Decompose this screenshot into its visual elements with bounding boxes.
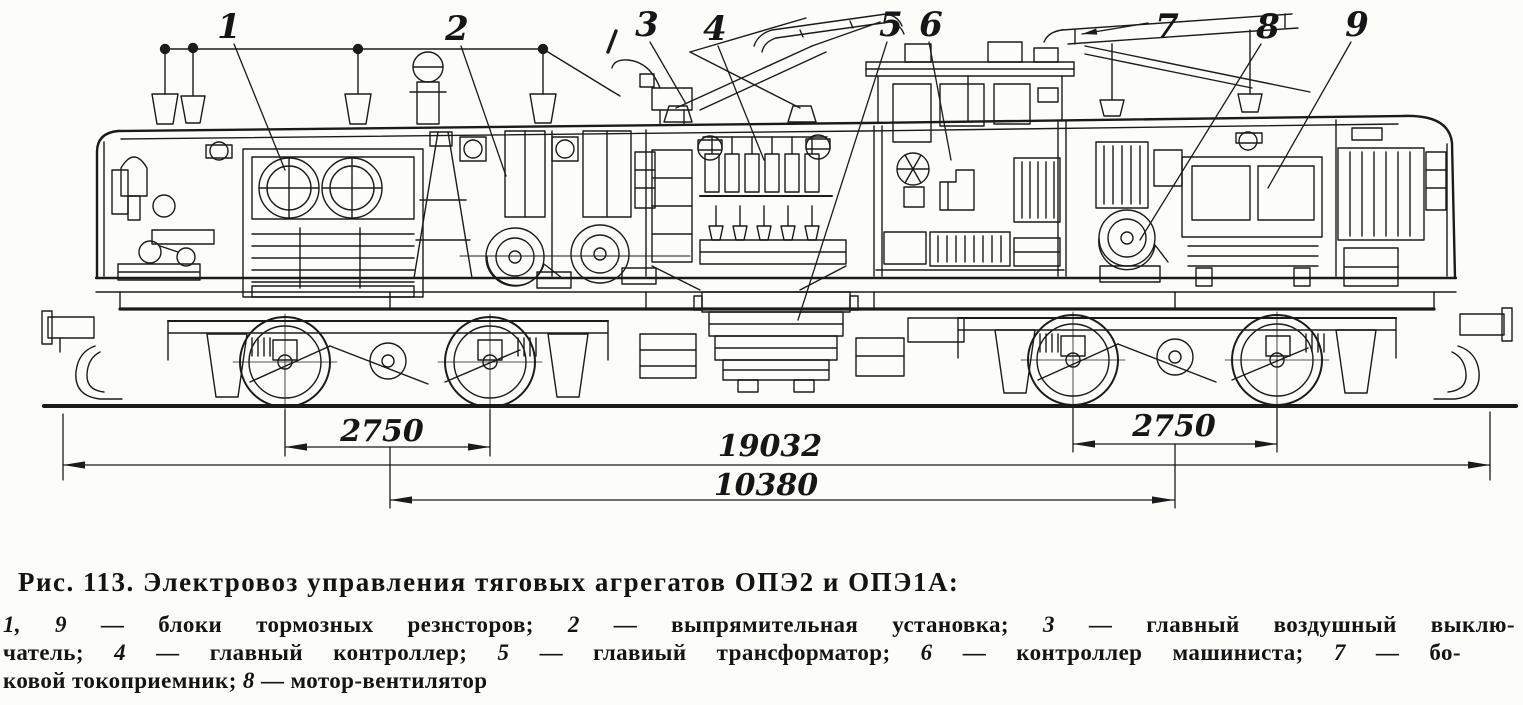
callout-3: 3 [635, 5, 659, 45]
callout-4: 4 [703, 9, 727, 49]
legend-text: — главиый трансформатор; [509, 640, 920, 665]
legend-num: 3 [1043, 612, 1055, 637]
dimension-label-bogie-centers: 10380 [714, 468, 818, 503]
callout-9: 9 [1345, 5, 1369, 45]
brake-resistor-block-front [243, 149, 423, 297]
legend-line-1: 1, 9 — блоки тормозных резнсторов; 2 — в… [3, 612, 1515, 638]
rear-coupler [1434, 308, 1512, 399]
roof-lamp [410, 52, 446, 124]
figure-title: Рис. 113. Электровоз управления тяговых … [18, 567, 959, 598]
legend-num: 8 [243, 668, 255, 693]
pantograph-raised [664, 14, 904, 122]
callout-8: 8 [1255, 7, 1280, 47]
front-equipment-bay [112, 142, 232, 280]
left-bogie [168, 314, 608, 410]
legend-text: — мотор-вентилятор [255, 668, 488, 693]
legend-num: 6 [921, 640, 933, 665]
figure-page: 2750 2750 19032 10380 1 2 3 4 5 6 7 [0, 0, 1523, 705]
legend-text: ковой токоприемник; [3, 668, 243, 693]
legend-text: — бо- [1346, 640, 1461, 665]
legend-num: 1, 9 [3, 612, 67, 637]
rectifier-unit [460, 131, 690, 288]
callout-1: 1 [217, 7, 241, 47]
rear-equipment-bay [1338, 128, 1446, 286]
legend-line-3: ковой токоприемник; 8 — мотор-вентилятор [3, 668, 488, 694]
interior-partitions [552, 120, 1336, 276]
roof-insulators [152, 51, 556, 124]
callout-2: 2 [444, 9, 469, 49]
front-coupler [42, 311, 122, 399]
legend-text: — контроллер машиниста; [933, 640, 1334, 665]
callout-5: 5 [879, 5, 903, 45]
legend-num: 2 [568, 612, 580, 637]
legend-text: — блоки тормозных резнсторов; [67, 612, 568, 637]
stray-mark [608, 31, 616, 52]
legend-text: — главный воздушный выклю- [1055, 612, 1515, 637]
right-bogie [958, 312, 1396, 408]
air-circuit-breaker [612, 60, 692, 124]
callout-7: 7 [1155, 7, 1179, 47]
driver-cab [876, 84, 1064, 270]
motor-fan [1096, 132, 1262, 282]
locomotive-diagram: 2750 2750 19032 10380 1 2 3 4 5 6 7 [0, 0, 1523, 560]
legend-text: — главный контроллер; [126, 640, 498, 665]
roof-bus-wire [161, 44, 621, 97]
legend-num: 7 [1334, 640, 1346, 665]
legend-text: чатель; [3, 640, 114, 665]
brake-resistor-block-rear [1182, 157, 1322, 286]
main-controller [652, 135, 846, 290]
roof-platform [866, 42, 1074, 123]
legend-text: — выпрямительная установка; [580, 612, 1043, 637]
legend-num: 5 [498, 640, 510, 665]
dimension-label-right-wheelbase: 2750 [1131, 409, 1216, 444]
dimension-label-overall-length: 19032 [718, 429, 822, 464]
dimension-label-left-wheelbase: 2750 [339, 414, 424, 449]
callout-6: 6 [919, 5, 943, 45]
legend-num: 4 [114, 640, 126, 665]
legend-line-2: чатель; 4 — главный контроллер; 5 — глав… [3, 640, 1461, 666]
